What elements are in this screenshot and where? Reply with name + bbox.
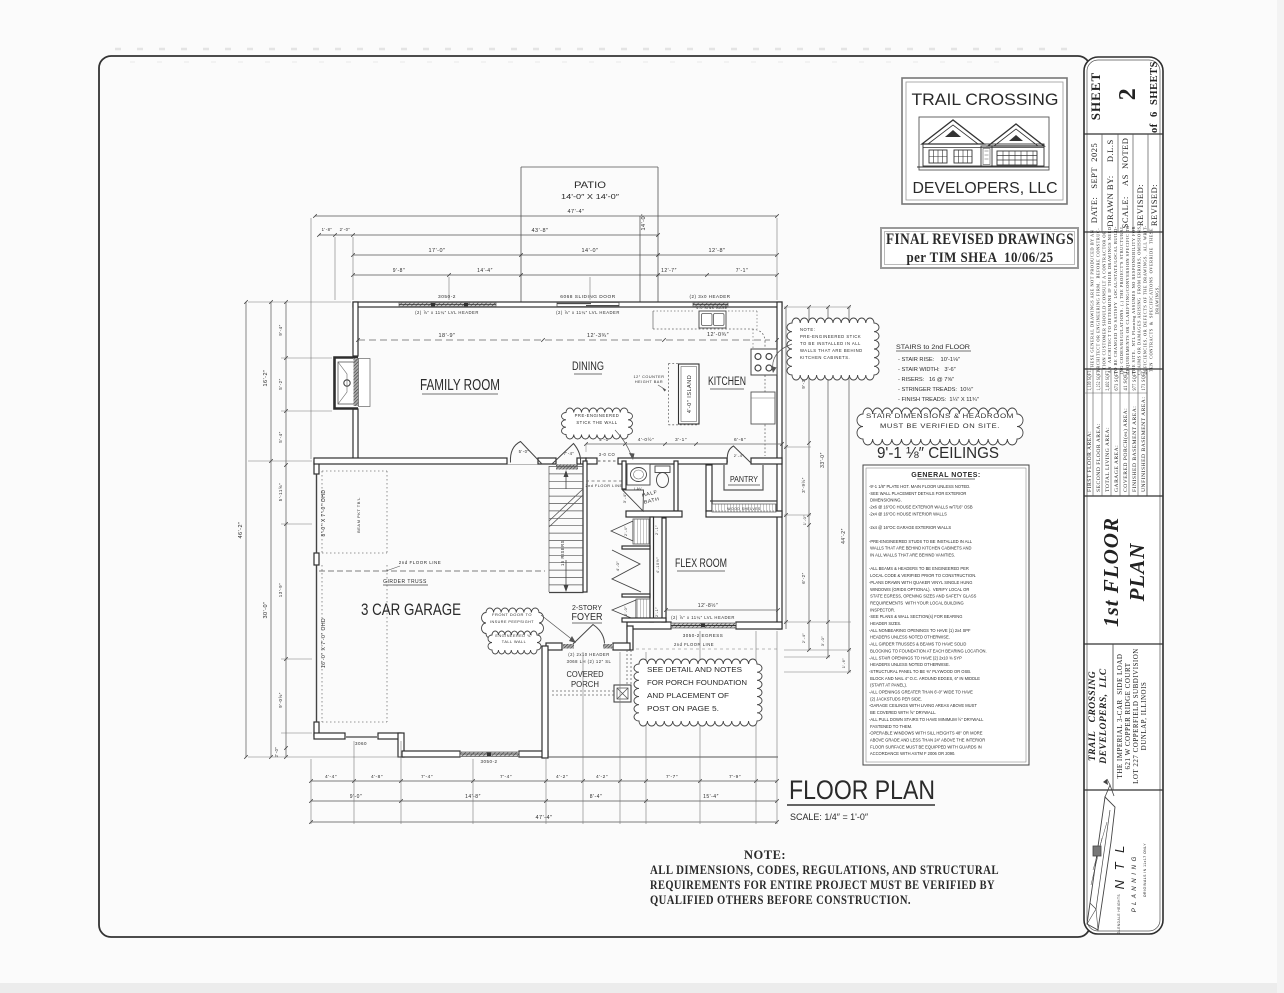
svg-text:DUNLAP, ILLINOIS: DUNLAP, ILLINOIS [1140, 682, 1148, 751]
svg-text:2'-0″: 2'-0″ [340, 227, 351, 232]
svg-text:673 SQFT: 673 SQFT [1115, 371, 1120, 391]
svg-text:2: 2 [1115, 88, 1141, 101]
svg-text:4'-10½″: 4'-10½″ [656, 557, 660, 573]
svg-text:33'-0″: 33'-0″ [820, 452, 826, 468]
svg-text:9'-1 ⅛″ CEILINGS: 9'-1 ⅛″ CEILINGS [877, 445, 999, 462]
svg-text:DATE: SEPT 2025: DATE: SEPT 2025 [1089, 143, 1099, 223]
svg-text:WALLS THAT ARE BEHIND KITCHEN: WALLS THAT ARE BEHIND KITCHEN CABINETS A… [869, 546, 971, 551]
svg-text:17'-0″: 17'-0″ [428, 248, 445, 254]
svg-text:INSPECTOR.: INSPECTOR. [869, 607, 895, 612]
svg-text:3068 LH (2) 12″ SL: 3068 LH (2) 12″ SL [567, 659, 612, 664]
svg-text:THE SITE. NTL Planning ASSUME: THE SITE. NTL Planning ASSUMES NO RESPON… [1131, 226, 1136, 374]
svg-text:DEVELOPERS, LLC: DEVELOPERS, LLC [1099, 668, 1109, 765]
svg-text:DINING: DINING [572, 361, 604, 373]
svg-text:-GARAGE CEILINGS WITH LIVING A: -GARAGE CEILINGS WITH LIVING AREAS ABOVE… [869, 703, 977, 708]
svg-text:TEN CONTRACTS & SPECIFICATI: TEN CONTRACTS & SPECIFICATIONS OVERRIDE … [1149, 228, 1154, 372]
svg-text:-ALL NONBEARING OPENINGS TO HA: -ALL NONBEARING OPENINGS TO HAVE (1) 2x4… [869, 628, 971, 633]
svg-text:2nd FLOOR LINE: 2nd FLOOR LINE [399, 560, 442, 565]
svg-text:5'-4″: 5'-4″ [278, 431, 283, 442]
svg-text:REQUIREMENTS WITH YOUR LOCAL: REQUIREMENTS WITH YOUR LOCAL BUILDING [869, 600, 964, 605]
svg-text:of 6 SHEETS: of 6 SHEETS [1149, 61, 1160, 133]
svg-text:- FINISH TREADS: 1¼″ X 11¾″: - FINISH TREADS: 1¼″ X 11¾″ [898, 397, 979, 403]
svg-text:COVERED PORCH(es) AREA:: COVERED PORCH(es) AREA: [1122, 408, 1129, 492]
svg-text:POST ON PAGE 5.: POST ON PAGE 5. [647, 706, 719, 713]
svg-text:18'-9″: 18'-9″ [438, 333, 455, 339]
svg-text:- STAIR RISE: 10'-1⅛″: - STAIR RISE: 10'-1⅛″ [898, 357, 960, 363]
svg-text:47'-4″: 47'-4″ [567, 209, 584, 215]
svg-text:13'-9″: 13'-9″ [278, 583, 283, 597]
svg-text:3060: 3060 [355, 741, 367, 746]
svg-text:KITCHEN CABINETS.: KITCHEN CABINETS. [800, 355, 850, 360]
svg-text:ORIGINALS IN 11x17 ONLY: ORIGINALS IN 11x17 ONLY [1143, 843, 1147, 897]
svg-text:QUALIFIED OTHERS BEFORE CONSTR: QUALIFIED OTHERS BEFORE CONSTRUCTION. [650, 893, 911, 907]
svg-text:2'-4″: 2'-4″ [734, 453, 745, 458]
svg-text:TO BE CHANGED TO SATISFY LOCA: TO BE CHANGED TO SATISFY LOCAL/STATE/LOC… [1113, 226, 1118, 374]
svg-text:3050-2 EGRESS: 3050-2 EGRESS [683, 633, 724, 638]
svg-text:GLENDALE HEIGHTS: GLENDALE HEIGHTS [1117, 894, 1121, 934]
svg-text:-PRE-ENGINEERED STUDS TO BE IN: -PRE-ENGINEERED STUDS TO BE INSTALLED IN… [869, 539, 973, 544]
svg-text:2-STORY: 2-STORY [572, 603, 602, 612]
svg-text:2'-4″: 2'-4″ [801, 633, 806, 644]
svg-text:STAIRS to 2nd FLOOR: STAIRS to 2nd FLOOR [896, 344, 971, 351]
svg-text:7'-4″: 7'-4″ [500, 774, 512, 780]
svg-text:LOT 227 COPPERFIELD SUBDIVISIO: LOT 227 COPPERFIELD SUBDIVISION [1132, 648, 1140, 784]
svg-text:COVERED: COVERED [567, 670, 604, 679]
svg-text:44'-2″: 44'-2″ [841, 528, 847, 544]
svg-text:HEADERS UNLESS NOTED OTHERWISE: HEADERS UNLESS NOTED OTHERWISE. [869, 662, 950, 667]
svg-text:-STRUCTURAL PANEL TO BE ⅜″ PLY: -STRUCTURAL PANEL TO BE ⅜″ PLYWOOD OR OS… [869, 669, 971, 674]
svg-text:TRAIL CROSSING: TRAIL CROSSING [912, 90, 1059, 109]
svg-text:-2x4 @ 16″OC HOUSE INTERIOR WA: -2x4 @ 16″OC HOUSE INTERIOR WALLS [869, 511, 947, 516]
svg-text:4-0 SINK BASE: 4-0 SINK BASE [696, 306, 728, 310]
svg-text:THE IMPERIAL 3-CAR SIDE LOAD: THE IMPERIAL 3-CAR SIDE LOAD [1116, 654, 1124, 779]
svg-text:SCALE: AS NOTED: SCALE: AS NOTED [1120, 138, 1130, 229]
svg-text:MUST BE VERIFIED ON SITE.: MUST BE VERIFIED ON SITE. [880, 423, 1000, 430]
svg-text:977 SQFT: 977 SQFT [1133, 371, 1138, 391]
svg-text:AN ARCHITECT TO DETERMINE IF: AN ARCHITECT TO DETERMINE IF THEIR DRAWI… [1107, 227, 1112, 374]
svg-text:(2) 3x0 HEADER: (2) 3x0 HEADER [689, 294, 730, 299]
svg-text:- RISERS: 16 @ 7⅝″: - RISERS: 16 @ 7⅝″ [898, 377, 954, 383]
svg-text:FOYER: FOYER [572, 612, 603, 623]
svg-text:BE COVERED WITH ⅝″ DRYWALL.: BE COVERED WITH ⅝″ DRYWALL. [869, 710, 936, 715]
svg-text:TALL WALL: TALL WALL [502, 640, 526, 644]
svg-text:2'-1″: 2'-1″ [655, 525, 659, 535]
svg-text:3 CAR GARAGE: 3 CAR GARAGE [361, 601, 461, 619]
svg-text:7'-4″: 7'-4″ [564, 451, 575, 456]
svg-text:3'-1″: 3'-1″ [675, 437, 687, 443]
svg-text:PATIO: PATIO [574, 180, 606, 190]
svg-text:FAMILY ROOM: FAMILY ROOM [420, 377, 500, 394]
svg-text:TOTAL LIVING AREA:: TOTAL LIVING AREA: [1105, 427, 1111, 492]
svg-text:ABOVE GRADE AND LESS THAN 24″: ABOVE GRADE AND LESS THAN 24″ ABOVE THE … [869, 737, 985, 742]
svg-text:3-0 CO: 3-0 CO [599, 452, 616, 457]
svg-text:HEADER SIZES.: HEADER SIZES. [869, 621, 901, 626]
svg-text:ALL DIMENSIONS, CODES, REGULAT: ALL DIMENSIONS, CODES, REGULATIONS, AND … [650, 863, 999, 877]
svg-text:12'-0¾″: 12'-0¾″ [707, 332, 729, 338]
svg-text:173 SQFT: 173 SQFT [1142, 371, 1147, 391]
svg-text:FRONT DOOR TO: FRONT DOOR TO [492, 612, 532, 617]
svg-text:(2) ⅞″ x 11¼″ LVL HEADER: (2) ⅞″ x 11¼″ LVL HEADER [415, 310, 479, 315]
svg-text:-2x6 @ 16″OC HOUSE EXTERIOR WA: -2x6 @ 16″OC HOUSE EXTERIOR WALLS w/7/16… [869, 505, 973, 510]
svg-text:BLOCKING TO FOUNDATION AT EACH: BLOCKING TO FOUNDATION AT EACH BEARING L… [869, 648, 987, 653]
svg-text:2nd FLOOR LINE: 2nd FLOOR LINE [674, 642, 714, 647]
svg-text:KITCHEN: KITCHEN [708, 376, 746, 388]
svg-text:per TIM SHEA 10/06/25: per TIM SHEA 10/06/25 [907, 250, 1054, 266]
svg-text:STATE EGRESS, OPENING SIZES AN: STATE EGRESS, OPENING SIZES AND SAFETY G… [869, 594, 977, 599]
svg-text:4'-0½″: 4'-0½″ [638, 436, 655, 443]
svg-text:2nd FLOOR LINE: 2nd FLOOR LINE [586, 484, 623, 488]
svg-text:(2) ⅞″ x 11¼″ LVL HEADER: (2) ⅞″ x 11¼″ LVL HEADER [671, 615, 735, 620]
svg-text:LOCAL CODE & VERIFIED PRIOR TO: LOCAL CODE & VERIFIED PRIOR TO CONSTRUCT… [869, 573, 976, 578]
svg-text:12'-7″: 12'-7″ [661, 268, 677, 274]
svg-text:1'-0″: 1'-0″ [802, 515, 807, 526]
svg-text:TO BE INSTALLED IN ALL: TO BE INSTALLED IN ALL [800, 341, 861, 346]
svg-text:DRAWN BY: D.L.S: DRAWN BY: D.L.S [1105, 139, 1115, 226]
svg-text:STAIR DIMENSIONS & HEADROOM: STAIR DIMENSIONS & HEADROOM [866, 413, 1014, 420]
svg-text:4'-0″: 4'-0″ [615, 561, 620, 572]
svg-text:41 SQFT: 41 SQFT [1124, 371, 1129, 391]
svg-text:8'-0″ X 7'-0″ OHD: 8'-0″ X 7'-0″ OHD [321, 489, 327, 536]
svg-text:GIRDER TRUSS: GIRDER TRUSS [383, 579, 427, 585]
svg-text:7'-9″: 7'-9″ [729, 774, 741, 780]
svg-text:DIMENSIONING.: DIMENSIONING. [869, 498, 902, 503]
svg-text:-ALL GIRDER TRUSSES & BEAMS TO: -ALL GIRDER TRUSSES & BEAMS TO HAVE SOLI… [869, 642, 966, 647]
svg-text:43'-8″: 43'-8″ [531, 228, 548, 234]
svg-text:4'-8″: 4'-8″ [371, 774, 383, 780]
svg-text:PRE-ENGINEERED: PRE-ENGINEERED [575, 413, 620, 418]
svg-text:3'-0″: 3'-0″ [820, 636, 825, 647]
svg-text:TRAIL CROSSING: TRAIL CROSSING [1088, 671, 1098, 761]
svg-text:HEADERS UNLESS NOTED OTHERWISE: HEADERS UNLESS NOTED OTHERWISE. [869, 635, 950, 640]
svg-text:REVISED:: REVISED: [1149, 184, 1159, 226]
svg-text:REVISED:: REVISED: [1135, 184, 1145, 226]
svg-text:14'-4″: 14'-4″ [477, 268, 493, 274]
svg-text:-PLANS DRAWN WITH QUAKER VINYL: -PLANS DRAWN WITH QUAKER VINYL SINGLE HU… [869, 580, 972, 585]
svg-text:3050-2: 3050-2 [438, 294, 456, 300]
svg-text:PANTRY: PANTRY [730, 474, 758, 484]
svg-text:HEIGHT BAR: HEIGHT BAR [635, 380, 663, 384]
svg-text:-SEE WALL PLACEMENT DETAILS FO: -SEE WALL PLACEMENT DETAILS FOR EXTERIOR [869, 491, 966, 496]
svg-text:621 W COPPER RIDGE COURT: 621 W COPPER RIDGE COURT [1124, 662, 1132, 769]
svg-text:-OPERABLE WINDOWS WITH SILL HE: -OPERABLE WINDOWS WITH SILL HEIGHTS 48″ … [869, 731, 983, 736]
svg-text:FOR PORCH FOUNDATION: FOR PORCH FOUNDATION [647, 680, 747, 687]
svg-text:PRE-ENGINEERED STICK: PRE-ENGINEERED STICK [800, 334, 861, 339]
svg-text:3'-4″: 3'-4″ [622, 493, 627, 504]
svg-text:1'-8″: 1'-8″ [322, 227, 333, 232]
svg-text:2'-4″: 2'-4″ [624, 526, 628, 536]
svg-text:SCALE: 1/4″ = 1'-0″: SCALE: 1/4″ = 1'-0″ [790, 812, 869, 823]
svg-text:DEVELOPERS, LLC: DEVELOPERS, LLC [913, 180, 1058, 197]
svg-text:ARCHITECT OR ENGINEERING FIRM.: ARCHITECT OR ENGINEERING FIRM. BEFORE CO… [1095, 228, 1100, 373]
svg-text:FINISHED BASEMENT AREA:: FINISHED BASEMENT AREA: [1132, 406, 1138, 492]
svg-text:P L A N N I N G: P L A N N I N G [1132, 856, 1138, 913]
svg-text:WALLS THAT ARE BEHIND: WALLS THAT ARE BEHIND [800, 348, 863, 353]
svg-text:UNFINISHED BASEMENT AREA:: UNFINISHED BASEMENT AREA: [1141, 397, 1147, 492]
svg-text:3050-2: 3050-2 [480, 759, 497, 764]
svg-text:WOOD SHELVES: WOOD SHELVES [727, 507, 760, 511]
svg-text:46'-2″: 46'-2″ [238, 521, 244, 538]
svg-text:(2) 2x10 HEADER: (2) 2x10 HEADER [568, 652, 609, 657]
svg-text:47'-4″: 47'-4″ [535, 815, 552, 821]
svg-text:-2x4 @ 16″OC GARAGE EXTERIOR W: -2x4 @ 16″OC GARAGE EXTERIOR WALLS [869, 525, 951, 530]
svg-text:2'-0″: 2'-0″ [274, 747, 279, 758]
svg-text:NOTE:: NOTE: [800, 327, 815, 332]
svg-text:REQUIREMENTS OR CLARIFYING/CON: REQUIREMENTS OR CLARIFYING/CONVERSION SP… [1125, 225, 1130, 374]
svg-text:12″ COUNTER: 12″ COUNTER [634, 375, 665, 379]
svg-text:-ALL OPENINGS GREATER THAN 6'-: -ALL OPENINGS GREATER THAN 6'-0″ WIDE TO… [869, 690, 973, 695]
svg-text:- STAIR WIDTH: 3'-6″: - STAIR WIDTH: 3'-6″ [898, 367, 956, 373]
svg-text:GENERAL NOTES:: GENERAL NOTES: [911, 472, 981, 479]
svg-text:N T L: N T L [1112, 843, 1127, 890]
svg-text:9'-0″: 9'-0″ [350, 794, 362, 800]
svg-text:7'-1″: 7'-1″ [736, 268, 748, 274]
svg-text:ACCORDANCE WITH ASTM F 2006 OR: ACCORDANCE WITH ASTM F 2006 OR 2090. [869, 751, 955, 756]
svg-text:9'-0⅝″: 9'-0⅝″ [278, 692, 283, 708]
svg-text:-ALL BEAMS & HEADERS TO BE ENG: -ALL BEAMS & HEADERS TO BE ENGINEERED PE… [869, 566, 969, 571]
svg-text:2'-1″: 2'-1″ [655, 607, 659, 617]
svg-text:NOTE:: NOTE: [744, 848, 786, 862]
svg-text:15'-4″: 15'-4″ [703, 794, 719, 800]
svg-text:FLOOR PLAN: FLOOR PLAN [789, 775, 935, 805]
svg-text:DRAWINGS.: DRAWINGS. [1154, 286, 1159, 315]
svg-text:1st FLOOR: 1st FLOOR [1099, 517, 1123, 627]
svg-text:16 RISERS: 16 RISERS [560, 540, 565, 566]
svg-text:PORCH: PORCH [571, 680, 599, 689]
svg-text:-9'-1 1/8″ PLATE HGT. MAIN FLO: -9'-1 1/8″ PLATE HGT. MAIN FLOOR UNLESS … [869, 484, 970, 489]
svg-text:FASTENED TO THEM.: FASTENED TO THEM. [869, 724, 912, 729]
svg-text:14'-0″: 14'-0″ [581, 248, 598, 254]
svg-text:9'-8″: 9'-8″ [393, 268, 405, 274]
svg-text:BLOCK AND NAIL 4″ O.C. AROUND: BLOCK AND NAIL 4″ O.C. AROUND EDGES, 6″ … [869, 676, 980, 681]
svg-text:SECOND FLOOR AREA:: SECOND FLOOR AREA: [1096, 423, 1102, 492]
svg-text:FLEX ROOM: FLEX ROOM [675, 558, 727, 570]
svg-text:FIRST FLOOR AREA:: FIRST FLOOR AREA: [1087, 431, 1093, 492]
svg-text:BEAM PKT TB'L: BEAM PKT TB'L [356, 497, 361, 533]
svg-text:REQUIREMENTS FOR ENTIRE PROJEC: REQUIREMENTS FOR ENTIRE PROJECT MUST BE … [650, 878, 995, 892]
svg-text:6068 SLIDING DOOR: 6068 SLIDING DOOR [560, 294, 615, 300]
svg-text:7'-4″: 7'-4″ [421, 774, 433, 780]
svg-text:-ALL PULL DOWN STAIRS TO HAVE: -ALL PULL DOWN STAIRS TO HAVE MINIMUM ½″… [869, 717, 984, 722]
svg-text:AND PLACEMENT OF: AND PLACEMENT OF [647, 693, 729, 700]
svg-text:INSURE PEEPSIGHT: INSURE PEEPSIGHT [490, 619, 534, 624]
svg-text:1,252 SQFT: 1,252 SQFT [1097, 371, 1102, 391]
svg-text:4'-4″: 4'-4″ [325, 774, 337, 780]
svg-text:2'-0″: 2'-0″ [624, 606, 628, 616]
svg-text:30'-0″: 30'-0″ [263, 601, 269, 618]
svg-text:12'-8½″: 12'-8½″ [698, 602, 718, 609]
svg-text:SHEET: SHEET [1088, 72, 1103, 120]
svg-text:THESE GENERAL DRAWINGS ARE NOT: THESE GENERAL DRAWINGS ARE NOT PRODUCED … [1090, 229, 1095, 370]
svg-text:- STRINGER TREADS: 10½″: - STRINGER TREADS: 10½″ [898, 386, 973, 393]
svg-text:(2) ⅞″ x 11¼″ LVL HEADER: (2) ⅞″ x 11¼″ LVL HEADER [556, 310, 620, 315]
svg-text:1'-6″: 1'-6″ [841, 658, 846, 669]
svg-text:SEE DETAIL AND NOTES: SEE DETAIL AND NOTES [647, 667, 742, 674]
svg-text:GARAGE AREA:: GARAGE AREA: [1114, 445, 1120, 492]
svg-text:8'-4″: 8'-4″ [590, 794, 602, 800]
svg-text:5'-11⅝″: 5'-11⅝″ [278, 483, 283, 501]
svg-text:-SEE PLANS & WALL SECTION(s) F: -SEE PLANS & WALL SECTION(s) FOR BEARING [869, 614, 962, 619]
svg-text:3'-9½″: 3'-9½″ [800, 477, 806, 493]
svg-text:ENGINEERED ¾″: ENGINEERED ¾″ [495, 634, 532, 638]
svg-text:6'-2″: 6'-2″ [801, 572, 806, 583]
svg-text:(2) JACKSTUDS PER SIDE.: (2) JACKSTUDS PER SIDE. [869, 696, 922, 701]
svg-text:FINAL REVISED DRAWINGS: FINAL REVISED DRAWINGS [886, 231, 1074, 248]
svg-text:TION CUSTOMER SHOULD CONSULT A: TION CUSTOMER SHOULD CONSULT A CONTRACTO… [1101, 231, 1106, 370]
svg-text:4'-2″: 4'-2″ [556, 774, 568, 780]
svg-text:7'-7″: 7'-7″ [666, 774, 678, 780]
svg-text:-ALL STAIR OPENINGS TO HAVE (2: -ALL STAIR OPENINGS TO HAVE (2) 2x10 ⅜ S… [869, 655, 962, 660]
svg-text:ING CODES/REGULATIONS. (.) THE: ING CODES/REGULATIONS. (.) THE PROJECT'S… [1119, 226, 1124, 375]
svg-text:12'-3¾″: 12'-3¾″ [587, 333, 609, 339]
svg-text:FLOOR SURFACE MUST BE EQUIPPED: FLOOR SURFACE MUST BE EQUIPPED WITH GUAR… [869, 744, 982, 749]
svg-text:PLAN: PLAN [1125, 543, 1149, 603]
svg-text:5'-2″: 5'-2″ [278, 378, 283, 389]
svg-text:STICK THE WALL: STICK THE WALL [576, 420, 617, 425]
svg-text:2,402 SQFT: 2,402 SQFT [1106, 371, 1111, 391]
svg-text:16'-2″: 16'-2″ [263, 369, 269, 386]
svg-text:6'-6″: 6'-6″ [734, 437, 746, 443]
svg-text:12'-8″: 12'-8″ [708, 248, 725, 254]
svg-text:14'-0″ X 14'-0″: 14'-0″ X 14'-0″ [561, 192, 619, 201]
svg-text:(START AT PANEL).: (START AT PANEL). [869, 683, 907, 688]
svg-text:WINDOWS (GRIDS OPTIONAL). VER: WINDOWS (GRIDS OPTIONAL). VERIFY LOCAL O… [869, 587, 969, 592]
svg-text:1,130 SQFT: 1,130 SQFT [1088, 371, 1093, 391]
svg-text:IN ALL WALLS THAT ARE BEHIND V: IN ALL WALLS THAT ARE BEHIND VANITIES. [869, 553, 955, 558]
svg-text:LAV: LAV [634, 487, 642, 491]
svg-text:4'-2″: 4'-2″ [596, 774, 608, 780]
svg-text:9'-4″: 9'-4″ [278, 324, 283, 335]
svg-text:4'-0″ ISLAND: 4'-0″ ISLAND [687, 375, 693, 413]
